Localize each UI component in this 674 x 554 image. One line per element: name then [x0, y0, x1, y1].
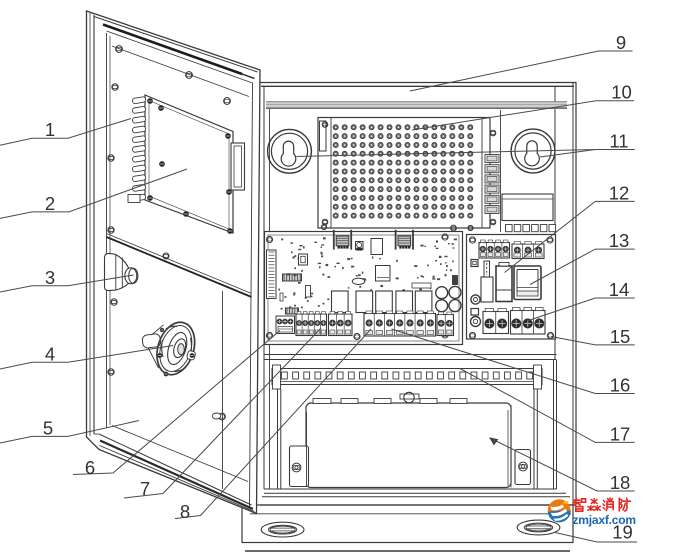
svg-text:9: 9 — [616, 32, 626, 53]
svg-text:16: 16 — [610, 375, 631, 396]
svg-text:1: 1 — [45, 119, 55, 140]
svg-text:13: 13 — [609, 230, 630, 251]
svg-text:11: 11 — [609, 131, 628, 152]
svg-text:zmjaxf.com: zmjaxf.com — [573, 513, 636, 527]
svg-text:5: 5 — [43, 417, 53, 438]
svg-text:6: 6 — [85, 457, 95, 478]
svg-text:3: 3 — [45, 267, 55, 288]
svg-text:10: 10 — [611, 82, 632, 103]
svg-text:18: 18 — [610, 472, 631, 493]
svg-text:12: 12 — [609, 182, 630, 203]
svg-text:14: 14 — [609, 279, 630, 300]
svg-text:17: 17 — [610, 423, 631, 444]
svg-text:7: 7 — [140, 478, 150, 499]
svg-text:8: 8 — [180, 501, 190, 522]
svg-text:15: 15 — [610, 326, 631, 347]
svg-text:4: 4 — [45, 343, 55, 364]
svg-text:2: 2 — [45, 193, 55, 214]
